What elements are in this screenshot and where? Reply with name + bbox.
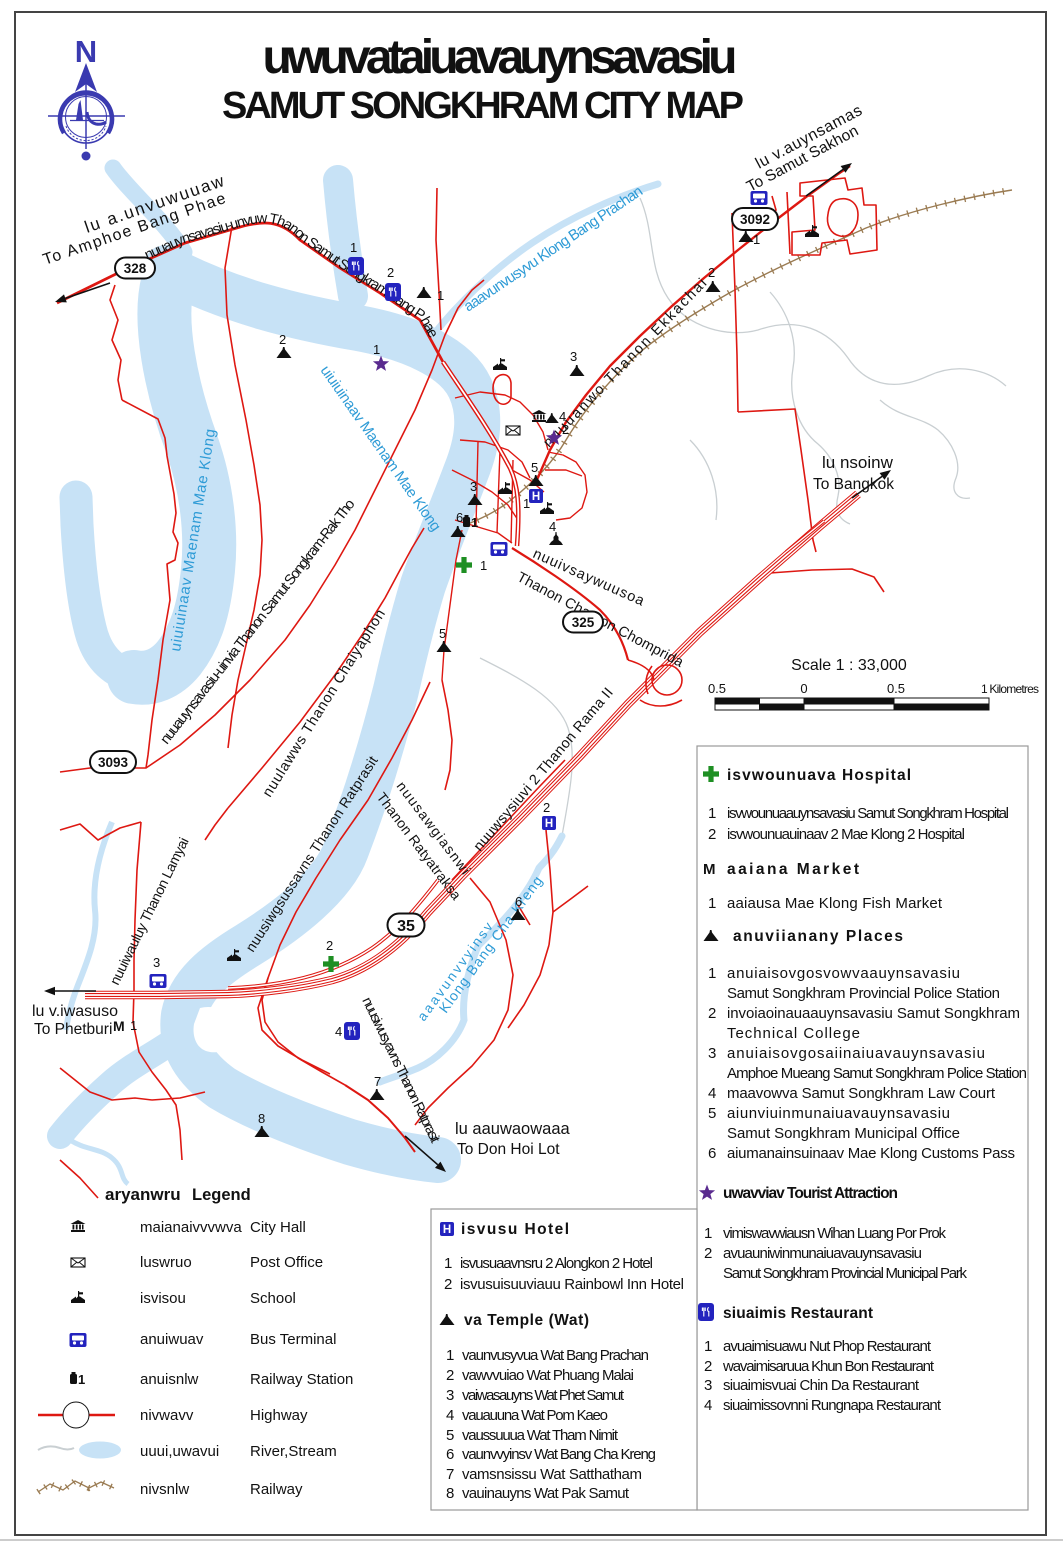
svg-text:1: 1	[704, 1225, 712, 1242]
svg-text:vaussuuua Wat Tham Nimit: vaussuuua Wat Tham Nimit	[462, 1427, 619, 1444]
svg-text:4: 4	[335, 1024, 342, 1039]
svg-text:Railway Station: Railway Station	[250, 1371, 353, 1388]
svg-text:isvusuaavnsru 2 Alongkon 2 Hot: isvusuaavnsru 2 Alongkon 2 Hotel	[460, 1255, 653, 1272]
svg-text:325: 325	[572, 615, 595, 630]
svg-text:isvusu Hotel: isvusu Hotel	[461, 1221, 569, 1238]
svg-text:1: 1	[523, 496, 530, 511]
svg-text:5: 5	[708, 1105, 716, 1122]
svg-text:siuaimis Restaurant: siuaimis Restaurant	[723, 1305, 873, 1322]
svg-text:1: 1	[446, 1347, 454, 1364]
svg-text:vawvvuiao Wat Phuang Malai: vawvvuiao Wat Phuang Malai	[462, 1367, 634, 1384]
svg-text:vauauuna Wat Pom Kaeo: vauauuna Wat Pom Kaeo	[462, 1407, 608, 1424]
svg-text:1 Kilometres: 1 Kilometres	[981, 682, 1039, 696]
svg-text:1: 1	[704, 1338, 712, 1355]
svg-text:3: 3	[153, 955, 160, 970]
svg-text:3: 3	[470, 479, 477, 494]
svg-text:4: 4	[708, 1085, 716, 1102]
svg-text:Samut Songkhram Provincial Pol: Samut Songkhram Provincial Police Statio…	[727, 985, 1000, 1002]
svg-text:2: 2	[326, 938, 333, 953]
svg-text:uuui,uwavui: uuui,uwavui	[140, 1443, 219, 1460]
svg-text:1: 1	[471, 515, 478, 530]
svg-text:2: 2	[387, 265, 394, 280]
svg-text:2: 2	[279, 332, 286, 347]
svg-text:nivwavv: nivwavv	[140, 1407, 194, 1424]
svg-text:2: 2	[543, 800, 550, 815]
svg-text:Samut Songkhram Provincial Mun: Samut Songkhram Provincial Municipal Par…	[723, 1265, 968, 1282]
svg-text:va Temple (Wat): va Temple (Wat)	[464, 1312, 589, 1329]
svg-text:To Bangkok: To Bangkok	[813, 476, 894, 493]
svg-text:5: 5	[439, 626, 446, 641]
svg-text:1: 1	[708, 895, 716, 912]
svg-text:M: M	[703, 861, 716, 878]
svg-text:H: H	[443, 1224, 451, 1236]
svg-text:8: 8	[446, 1485, 454, 1502]
svg-text:anuiaisovgosvowvaauynsavasiu: anuiaisovgosvowvaauynsavasiu	[727, 965, 960, 982]
svg-text:3: 3	[704, 1377, 712, 1394]
svg-text:0: 0	[800, 681, 807, 696]
svg-text:4: 4	[549, 519, 556, 534]
svg-text:avuaimisuawu Nut Phop Restaura: avuaimisuawu Nut Phop Restaurant	[723, 1338, 932, 1355]
svg-text:1: 1	[373, 342, 380, 357]
svg-text:2: 2	[708, 826, 716, 843]
svg-text:vaiwasauyns Wat Phet Samut: vaiwasauyns Wat Phet Samut	[462, 1387, 625, 1404]
svg-text:To Phetburi: To Phetburi	[34, 1021, 112, 1038]
svg-text:2: 2	[708, 1005, 716, 1022]
svg-text:vamsnsissu Wat Satthatham: vamsnsissu Wat Satthatham	[462, 1466, 642, 1483]
svg-text:aiunviuinmunaiuavauynsavasiu: aiunviuinmunaiuavauynsavasiu	[727, 1105, 950, 1122]
svg-text:6: 6	[708, 1145, 716, 1162]
svg-text:7: 7	[446, 1466, 454, 1483]
svg-text:isvwounuauinaav 2 Mae Klong 2: isvwounuauinaav 2 Mae Klong 2 Hospital	[727, 826, 965, 843]
svg-text:Technical College: Technical College	[727, 1025, 860, 1042]
svg-text:2: 2	[704, 1358, 712, 1375]
svg-text:siuaimisvuai Chin Da Restauran: siuaimisvuai Chin Da Restaurant	[723, 1377, 920, 1394]
svg-text:uwavviav Tourist Attraction: uwavviav Tourist Attraction	[723, 1185, 898, 1202]
svg-text:uwuvataiuavauynsavasiu: uwuvataiuavauynsavasiu	[263, 31, 738, 84]
svg-text:maavowva Samut Songkhram Law C: maavowva Samut Songkhram Law Court	[727, 1085, 996, 1102]
svg-text:aaiausa Mae Klong Fish Market: aaiausa Mae Klong Fish Market	[727, 895, 943, 912]
svg-text:maianaivvvwva: maianaivvvwva	[140, 1219, 242, 1236]
svg-text:1: 1	[480, 558, 487, 573]
svg-text:invoiaoinauaauynsavasiu Samut: invoiaoinauaauynsavasiu Samut Songkhram	[727, 1005, 1020, 1022]
svg-text:3: 3	[446, 1387, 454, 1404]
svg-text:lu v.iwasuso: lu v.iwasuso	[32, 1003, 118, 1020]
svg-text:siuaimissovnni Rungnapa Resta: siuaimissovnni Rungnapa Restaurant	[723, 1397, 942, 1414]
svg-text:anuisnlw: anuisnlw	[140, 1371, 199, 1388]
svg-text:Scale 1 : 33,000: Scale 1 : 33,000	[791, 657, 907, 674]
svg-text:anuiwuav: anuiwuav	[140, 1331, 204, 1348]
svg-text:5: 5	[531, 460, 538, 475]
svg-text:Highway: Highway	[250, 1407, 308, 1424]
svg-text:isvwounuaauynsavasiu Samut Son: isvwounuaauynsavasiu Samut Songkhram Hos…	[727, 805, 1009, 822]
svg-text:3092: 3092	[740, 212, 770, 227]
svg-text:lu nsoinw: lu nsoinw	[822, 453, 894, 472]
svg-text:1: 1	[708, 965, 716, 982]
svg-text:River,Stream: River,Stream	[250, 1443, 337, 1460]
svg-text:1: 1	[78, 1372, 85, 1387]
svg-text:1: 1	[444, 1255, 452, 1272]
svg-text:Post Office: Post Office	[250, 1254, 323, 1271]
svg-text:nivsnlw: nivsnlw	[140, 1481, 189, 1498]
svg-text:3: 3	[570, 349, 577, 364]
svg-text:8: 8	[258, 1111, 265, 1126]
svg-text:City Hall: City Hall	[250, 1219, 306, 1236]
svg-text:To Don Hoi Lot: To Don Hoi Lot	[457, 1141, 560, 1158]
svg-text:Amphoe Mueang Samut Songkhram: Amphoe Mueang Samut Songkhram Police Sta…	[727, 1065, 1027, 1082]
svg-text:3: 3	[708, 1045, 716, 1062]
svg-text:luswruo: luswruo	[140, 1254, 192, 1271]
svg-text:vauinauyns Wat Pak Samut: vauinauyns Wat Pak Samut	[462, 1485, 630, 1502]
svg-text:anuviianany Places: anuviianany Places	[733, 928, 903, 945]
svg-text:vaunvvyinsv Wat Bang Cha Kreng: vaunvvyinsv Wat Bang Cha Kreng	[462, 1446, 656, 1463]
svg-text:7: 7	[374, 1074, 381, 1089]
svg-text:School: School	[250, 1290, 296, 1307]
svg-text:SAMUT SONGKHRAM CITY MAP: SAMUT SONGKHRAM CITY MAP	[222, 85, 744, 127]
svg-text:6: 6	[456, 510, 463, 525]
svg-text:anuiaisovgosaiinaiuavauynsavas: anuiaisovgosaiinaiuavauynsavasiu	[727, 1045, 985, 1062]
svg-text:4: 4	[704, 1397, 712, 1414]
svg-text:Samut Songkhram Municipal Offi: Samut Songkhram Municipal Office	[727, 1125, 960, 1142]
svg-text:M: M	[113, 1018, 125, 1034]
svg-text:0.5: 0.5	[708, 681, 726, 696]
svg-text:avuauniwinmunaiuavauynsavasiu: avuauniwinmunaiuavauynsavasiu	[723, 1245, 922, 1262]
svg-text:6: 6	[446, 1446, 454, 1463]
svg-text:2: 2	[708, 265, 715, 280]
svg-text:1: 1	[350, 240, 357, 255]
svg-text:Railway: Railway	[250, 1481, 303, 1498]
svg-text:isvusuisuuviauu Rainbowl Inn: isvusuisuuviauu Rainbowl Inn Hotel	[460, 1276, 684, 1293]
svg-text:Bus Terminal: Bus Terminal	[250, 1331, 336, 1348]
svg-text:6: 6	[515, 894, 522, 909]
svg-text:H: H	[532, 491, 540, 503]
svg-text:2: 2	[704, 1245, 712, 1262]
svg-text:1: 1	[708, 805, 716, 822]
svg-text:lu aauwaowaaa: lu aauwaowaaa	[455, 1120, 570, 1138]
svg-text:vaunvusyvua Wat Bang Prachan: vaunvusyvua Wat Bang Prachan	[462, 1347, 649, 1364]
svg-text:5: 5	[446, 1427, 454, 1444]
svg-text:wavaimisaruua Khun Bon Restaur: wavaimisaruua Khun Bon Restaurant	[722, 1358, 935, 1375]
svg-text:2: 2	[446, 1367, 454, 1384]
svg-text:0.5: 0.5	[887, 681, 905, 696]
svg-text:aiumanainsuinaav Mae Klong Cu: aiumanainsuinaav Mae Klong Customs Pass	[727, 1145, 1015, 1162]
svg-text:isvwounuava Hospital: isvwounuava Hospital	[727, 767, 911, 784]
svg-text:1: 1	[130, 1018, 137, 1033]
svg-text:35: 35	[397, 918, 415, 935]
svg-text:1: 1	[437, 288, 444, 303]
svg-text:aryanwru: aryanwru	[105, 1185, 181, 1204]
svg-text:4: 4	[446, 1407, 454, 1424]
svg-text:isvisou: isvisou	[140, 1290, 186, 1307]
svg-text:2: 2	[444, 1276, 452, 1293]
svg-text:3093: 3093	[98, 755, 129, 770]
svg-text:H: H	[545, 818, 553, 830]
svg-text:vimiswavwiausn Wihan Luang Por: vimiswavwiausn Wihan Luang Por Prok	[723, 1225, 947, 1242]
svg-text:328: 328	[124, 261, 147, 276]
svg-text:1: 1	[753, 232, 760, 247]
svg-text:2: 2	[562, 422, 569, 437]
svg-text:Legend: Legend	[192, 1186, 251, 1204]
